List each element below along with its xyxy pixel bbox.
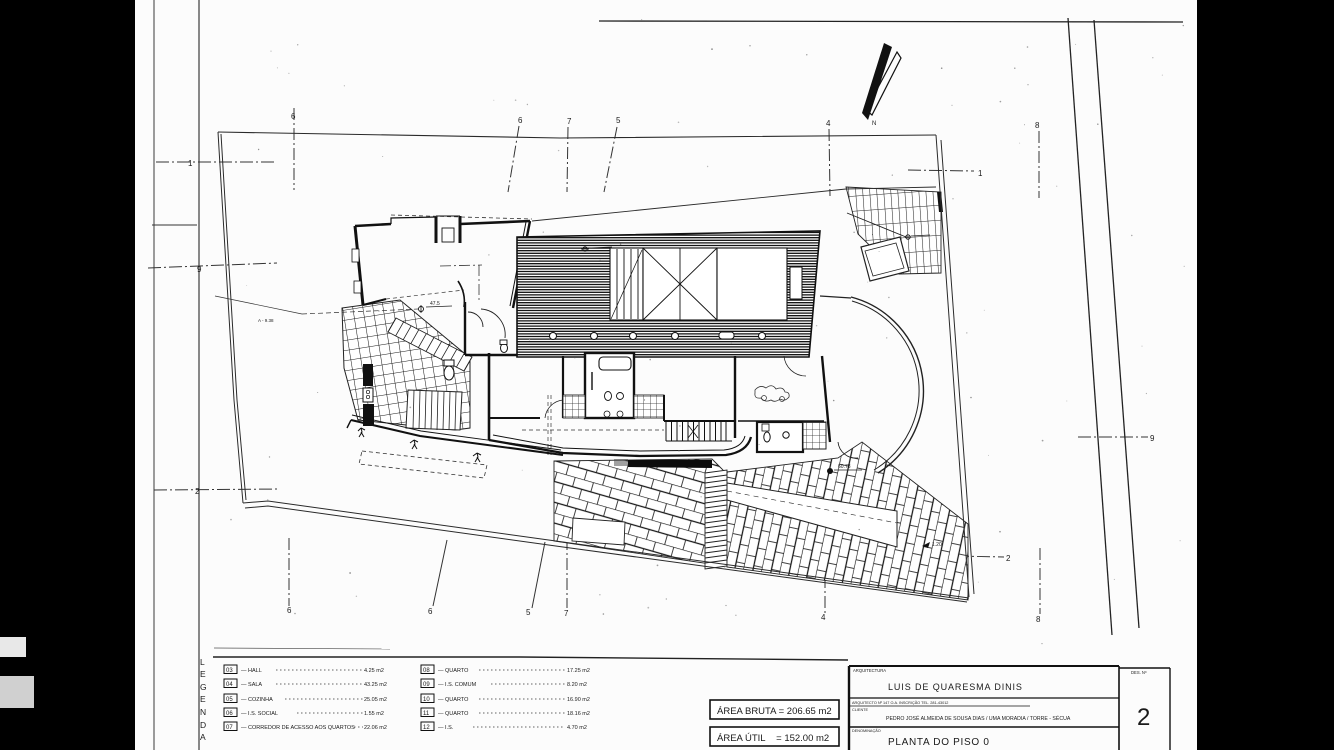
svg-text:PLANTA DO PISO 0: PLANTA DO PISO 0	[888, 737, 990, 748]
svg-text:11: 11	[423, 711, 430, 717]
svg-text:5: 5	[526, 608, 531, 617]
svg-text:— CORREDOR DE ACESSO AOS QUART: — CORREDOR DE ACESSO AOS QUARTOS	[241, 725, 355, 731]
svg-text:8.20 m2: 8.20 m2	[567, 682, 587, 688]
svg-text:8: 8	[1036, 615, 1041, 624]
svg-text:1.55 m2: 1.55 m2	[364, 711, 384, 717]
svg-text:A: A	[200, 732, 206, 742]
svg-text:25.05 m2: 25.05 m2	[364, 697, 387, 703]
svg-text:A - 9.38: A - 9.38	[258, 318, 274, 323]
svg-text:LUIS DE QUARESMA DINIS: LUIS DE QUARESMA DINIS	[888, 682, 1023, 692]
svg-text:12: 12	[423, 725, 430, 731]
svg-text:PEDRO JOSÉ ALMEIDA DE SOUSA: PEDRO JOSÉ ALMEIDA DE SOUSA DIAS / UMA M…	[886, 715, 1071, 722]
svg-text:22.06 m2: 22.06 m2	[364, 725, 387, 731]
svg-text:06: 06	[226, 711, 233, 717]
svg-text:CLIENTE: CLIENTE	[852, 708, 869, 712]
svg-text:DENOMINAÇÃO: DENOMINAÇÃO	[852, 728, 881, 733]
svg-text:E: E	[200, 694, 206, 704]
svg-text:4.25 m2: 4.25 m2	[364, 668, 384, 674]
svg-text:ARQUITECTO Nº 147 O.A. INSC: ARQUITECTO Nº 147 O.A. INSCRIÇÃO TEL. 28…	[852, 700, 948, 705]
svg-text:D: D	[200, 720, 206, 730]
svg-text:2: 2	[195, 487, 200, 496]
svg-text:— I.S.: — I.S.	[438, 725, 454, 731]
svg-text:9: 9	[1150, 434, 1155, 443]
svg-text:7: 7	[567, 117, 572, 126]
svg-text:— SALA: — SALA	[241, 682, 262, 688]
svg-text:60.78: 60.78	[838, 464, 851, 470]
svg-text:6: 6	[287, 606, 292, 615]
svg-text:17.25 m2: 17.25 m2	[567, 668, 590, 674]
svg-text:1: 1	[188, 159, 193, 168]
svg-text:16.90 m2: 16.90 m2	[567, 697, 590, 703]
svg-text:N: N	[872, 121, 876, 127]
svg-text:5: 5	[616, 116, 621, 125]
svg-text:— QUARTO: — QUARTO	[438, 668, 469, 674]
svg-text:2: 2	[1137, 704, 1150, 731]
svg-text:— I.S. SOCIAL: — I.S. SOCIAL	[241, 711, 278, 717]
svg-text:E: E	[200, 669, 206, 679]
svg-text:DES. Nº: DES. Nº	[1131, 670, 1147, 675]
svg-text:— HALL: — HALL	[241, 668, 262, 674]
svg-text:4: 4	[821, 613, 826, 622]
svg-text:4.70 m2: 4.70 m2	[567, 725, 587, 731]
svg-text:07: 07	[226, 725, 233, 731]
svg-text:9: 9	[197, 265, 202, 274]
svg-text:N: N	[200, 707, 206, 717]
svg-text:6: 6	[428, 607, 433, 616]
svg-text:09: 09	[423, 682, 430, 688]
svg-text:— QUARTO: — QUARTO	[438, 697, 469, 703]
svg-text:7: 7	[564, 609, 569, 618]
svg-text:43.25 m2: 43.25 m2	[364, 682, 387, 688]
svg-text:— QUARTO: — QUARTO	[438, 711, 469, 717]
svg-text:2: 2	[1006, 554, 1011, 563]
svg-text:04: 04	[226, 682, 233, 688]
svg-text:ÁREA ÚTIL = 152.00 m2: ÁREA ÚTIL = 152.00 m2	[717, 733, 829, 744]
svg-text:8: 8	[1035, 121, 1040, 130]
svg-text:ARQUITECTURA: ARQUITECTURA	[853, 668, 886, 673]
svg-text:1.20: 1.20	[932, 542, 942, 548]
svg-text:— COZINHA: — COZINHA	[241, 697, 273, 703]
svg-text:— I.S. COMUM: — I.S. COMUM	[438, 682, 477, 688]
svg-text:10: 10	[423, 697, 430, 703]
svg-text:L: L	[200, 657, 205, 667]
svg-text:1: 1	[978, 169, 983, 178]
svg-text:4: 4	[826, 119, 831, 128]
svg-text:03: 03	[226, 668, 233, 674]
svg-text:18.16 m2: 18.16 m2	[567, 711, 590, 717]
svg-text:47.5: 47.5	[430, 301, 440, 307]
svg-text:05: 05	[226, 697, 233, 703]
svg-text:G: G	[200, 682, 207, 692]
svg-text:6: 6	[518, 116, 523, 125]
svg-text:ÁREA BRUTA = 206.65 m2: ÁREA BRUTA = 206.65 m2	[717, 706, 832, 717]
svg-text:08: 08	[423, 668, 430, 674]
